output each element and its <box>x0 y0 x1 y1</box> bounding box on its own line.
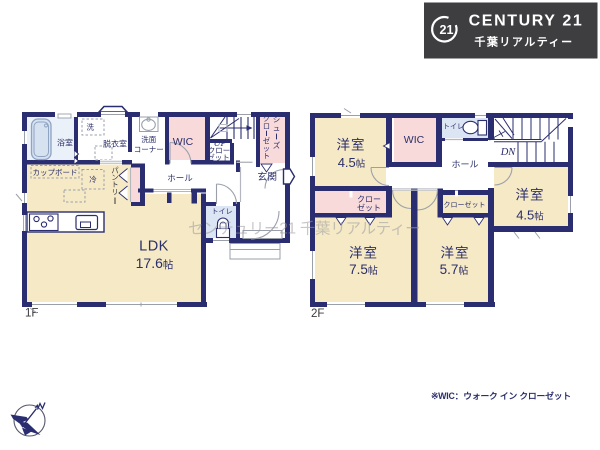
svg-text:ゼット: ゼット <box>207 152 230 162</box>
svg-text:CENTURY 21: CENTURY 21 <box>469 13 584 30</box>
svg-text:センチュリー21 千葉リアルティー: センチュリー21 千葉リアルティー <box>188 220 420 238</box>
svg-text:洗: 洗 <box>87 122 95 132</box>
svg-text:クロゼット: クロゼット <box>263 114 270 161</box>
svg-text:洋室: 洋室 <box>349 245 378 261</box>
svg-text:洋室: 洋室 <box>516 187 545 203</box>
svg-text:千葉リアルティー: 千葉リアルティー <box>474 35 573 49</box>
svg-text:DN: DN <box>500 147 517 158</box>
svg-text:WIC: WIC <box>173 136 194 148</box>
svg-text:ホール: ホール <box>451 160 478 170</box>
svg-text:脱衣室: 脱衣室 <box>103 139 127 149</box>
svg-text:トイレ: トイレ <box>212 209 233 216</box>
svg-text:パントリ: パントリ <box>111 166 118 196</box>
svg-text:玄関: 玄関 <box>257 171 277 183</box>
svg-text:コーナー: コーナー <box>134 145 164 154</box>
svg-text:シュズ: シュズ <box>273 115 281 150</box>
svg-text:クローゼット: クローゼット <box>444 200 486 209</box>
svg-text:ホール: ホール <box>167 173 193 183</box>
svg-text:洗面: 洗面 <box>141 134 156 144</box>
svg-text:トイレ: トイレ <box>443 124 464 131</box>
svg-text:洋室: 洋室 <box>337 137 366 153</box>
svg-text:洋室: 洋室 <box>441 245 470 261</box>
svg-text:WIC: WIC <box>404 134 425 146</box>
svg-text:浴室: 浴室 <box>57 138 73 148</box>
svg-text:カップボード: カップボード <box>33 168 78 177</box>
svg-text:LDK: LDK <box>139 239 169 255</box>
svg-text:※WIC：ウォーク イン クローゼット: ※WIC：ウォーク イン クローゼット <box>431 390 571 401</box>
svg-text:冷: 冷 <box>89 174 97 184</box>
svg-text:2F: 2F <box>311 308 324 320</box>
svg-text:21: 21 <box>440 23 454 37</box>
svg-text:ゼット: ゼット <box>357 203 381 213</box>
